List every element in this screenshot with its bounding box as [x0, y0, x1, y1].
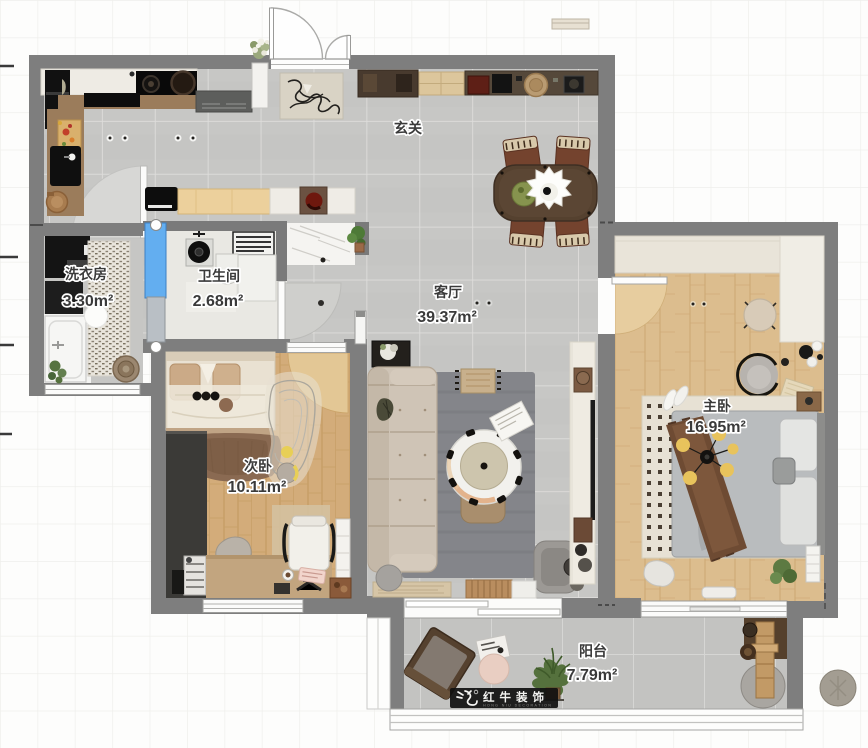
svg-text:2.68m²: 2.68m²	[193, 293, 244, 310]
svg-text:次卧: 次卧	[244, 458, 272, 474]
svg-text:红牛装饰: 红牛装饰	[483, 690, 549, 704]
svg-text:10.11m²: 10.11m²	[228, 479, 287, 496]
svg-text:3.30m²: 3.30m²	[63, 293, 114, 310]
svg-text:7.79m²: 7.79m²	[567, 667, 618, 684]
svg-text:HONG NIU DECORATION: HONG NIU DECORATION	[483, 704, 552, 708]
svg-text:卫生间: 卫生间	[198, 268, 240, 284]
svg-text:39.37m²: 39.37m²	[417, 309, 477, 326]
svg-text:阳台: 阳台	[579, 643, 607, 659]
svg-text:洗衣房: 洗衣房	[65, 266, 107, 282]
svg-text:16.95m²: 16.95m²	[686, 419, 746, 436]
svg-text:玄关: 玄关	[394, 120, 422, 136]
svg-text:客厅: 客厅	[433, 284, 462, 300]
svg-text:主卧: 主卧	[703, 398, 731, 414]
